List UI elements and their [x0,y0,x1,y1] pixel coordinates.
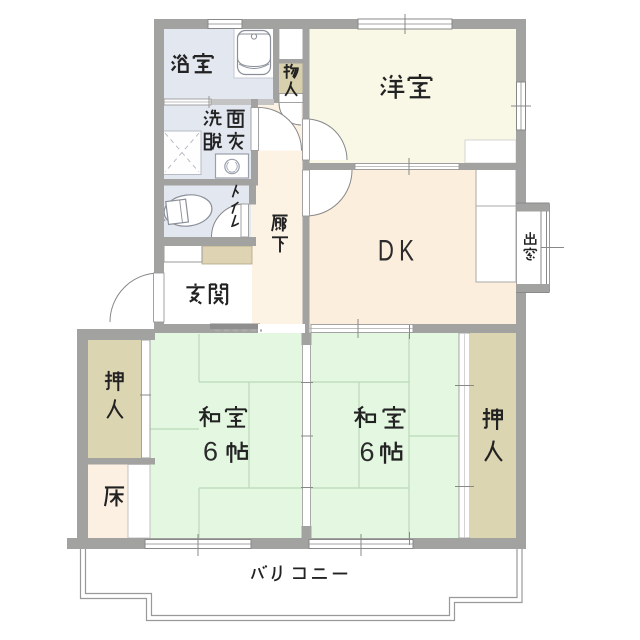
svg-text:6: 6 [203,437,218,467]
svg-text:DK: DK [378,233,419,267]
svg-text:6: 6 [359,437,374,467]
